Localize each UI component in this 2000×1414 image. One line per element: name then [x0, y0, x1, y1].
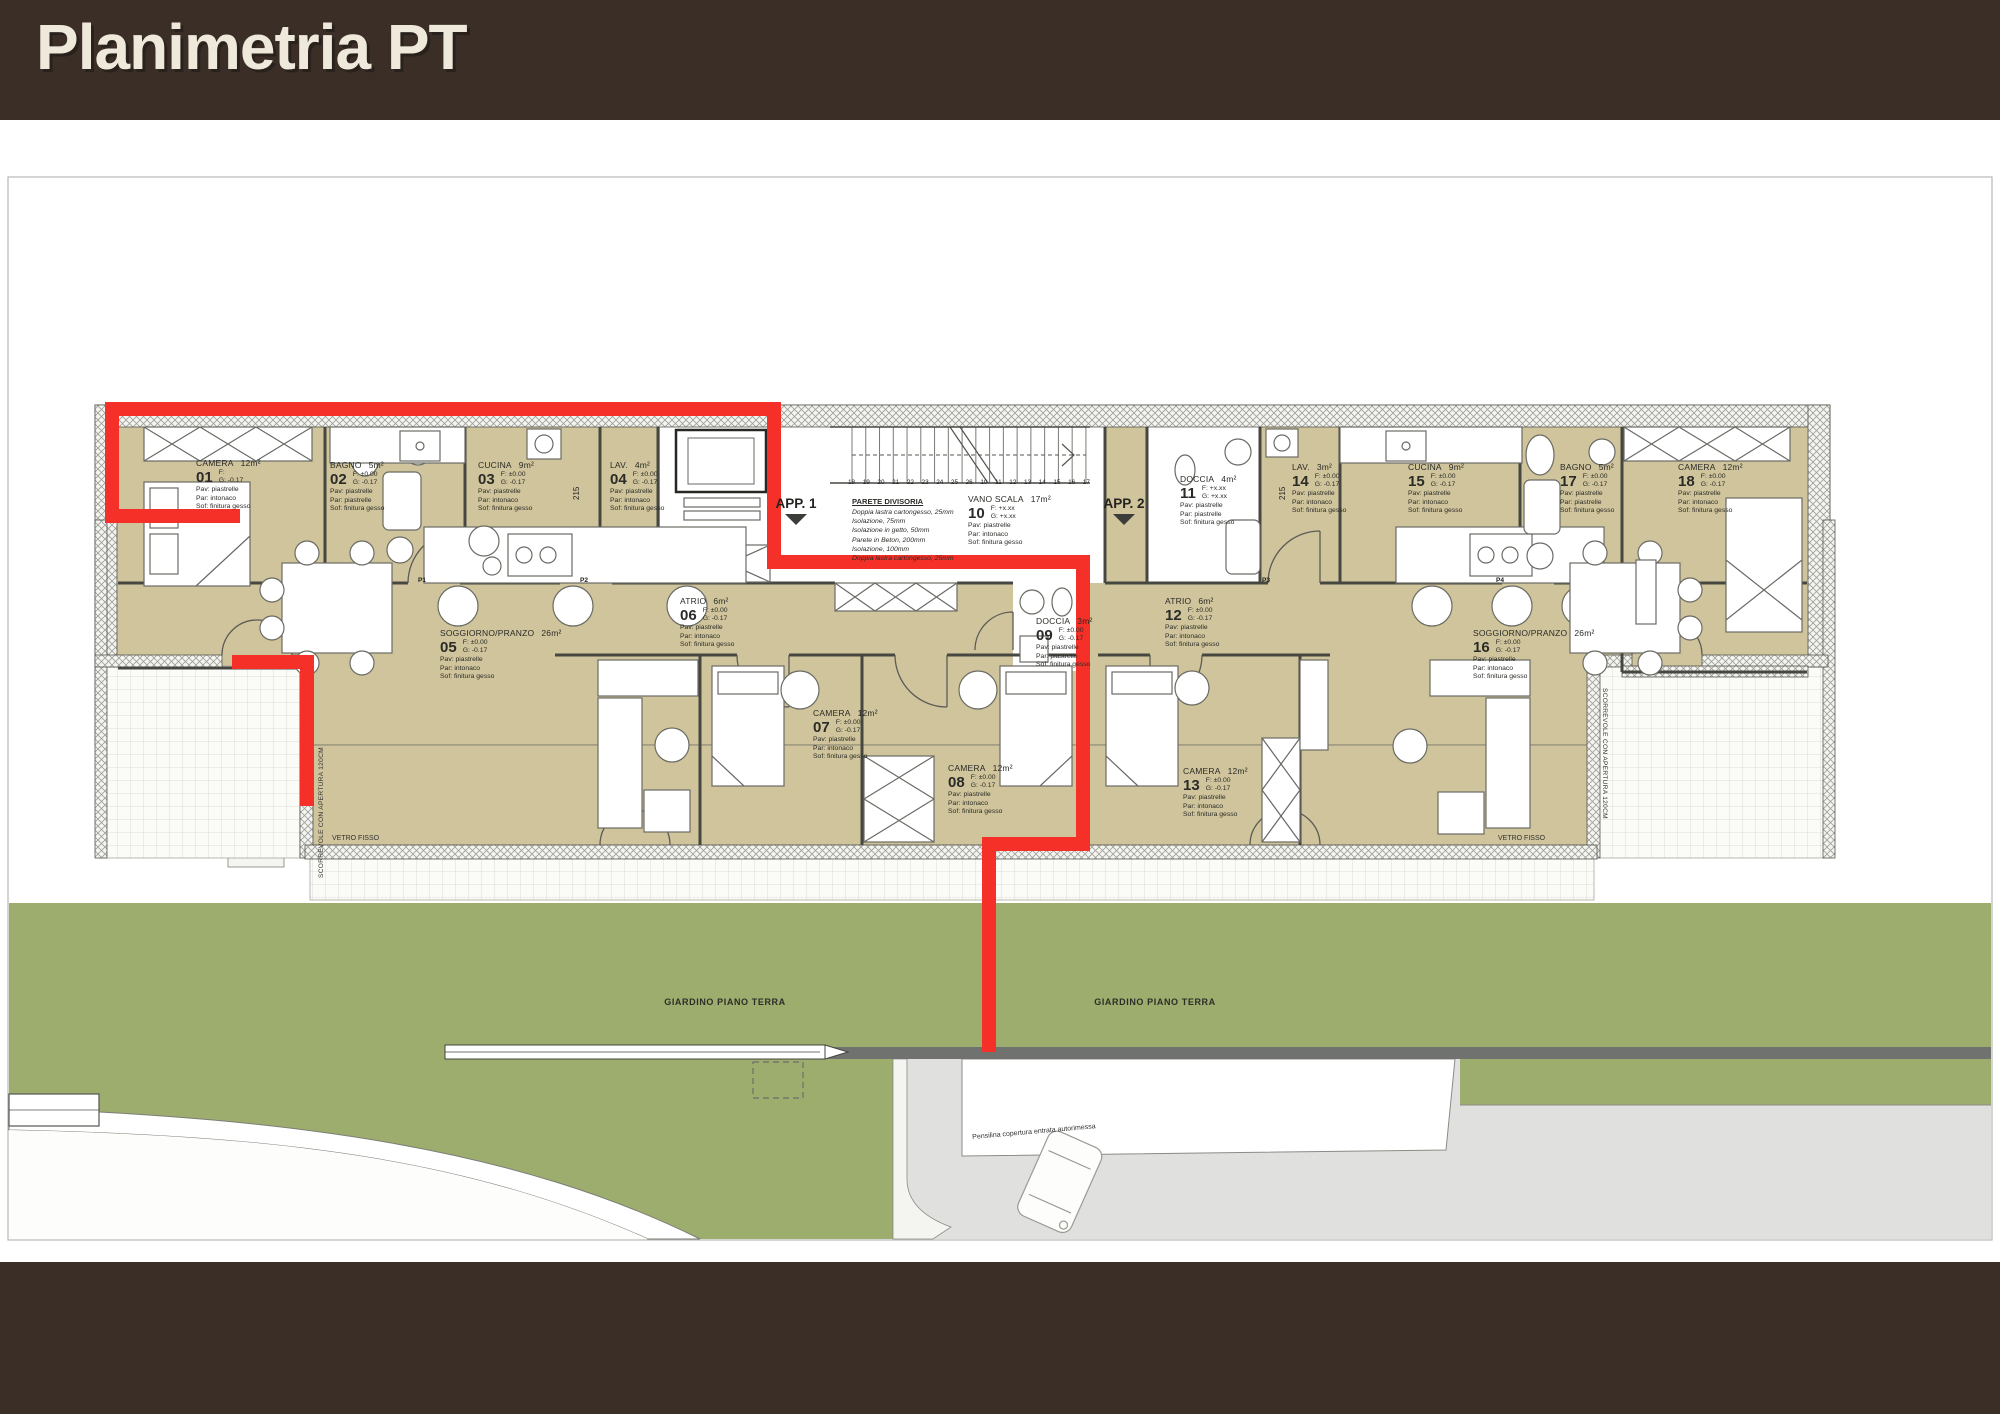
garage-canopy — [962, 1059, 1455, 1156]
page-title: Planimetria PT — [36, 10, 467, 84]
floorplan-page: CAMERA12m²01F: G: -0.17Pav: piastrellePa… — [0, 0, 2000, 1414]
garden-areas — [9, 845, 1991, 1239]
terrace-right — [1596, 666, 1828, 858]
floor-plan-svg — [0, 0, 2000, 1414]
terrace-south — [310, 858, 1594, 900]
footer-band — [0, 1262, 2000, 1414]
stairs — [830, 427, 1090, 483]
terrace-left — [98, 666, 312, 858]
